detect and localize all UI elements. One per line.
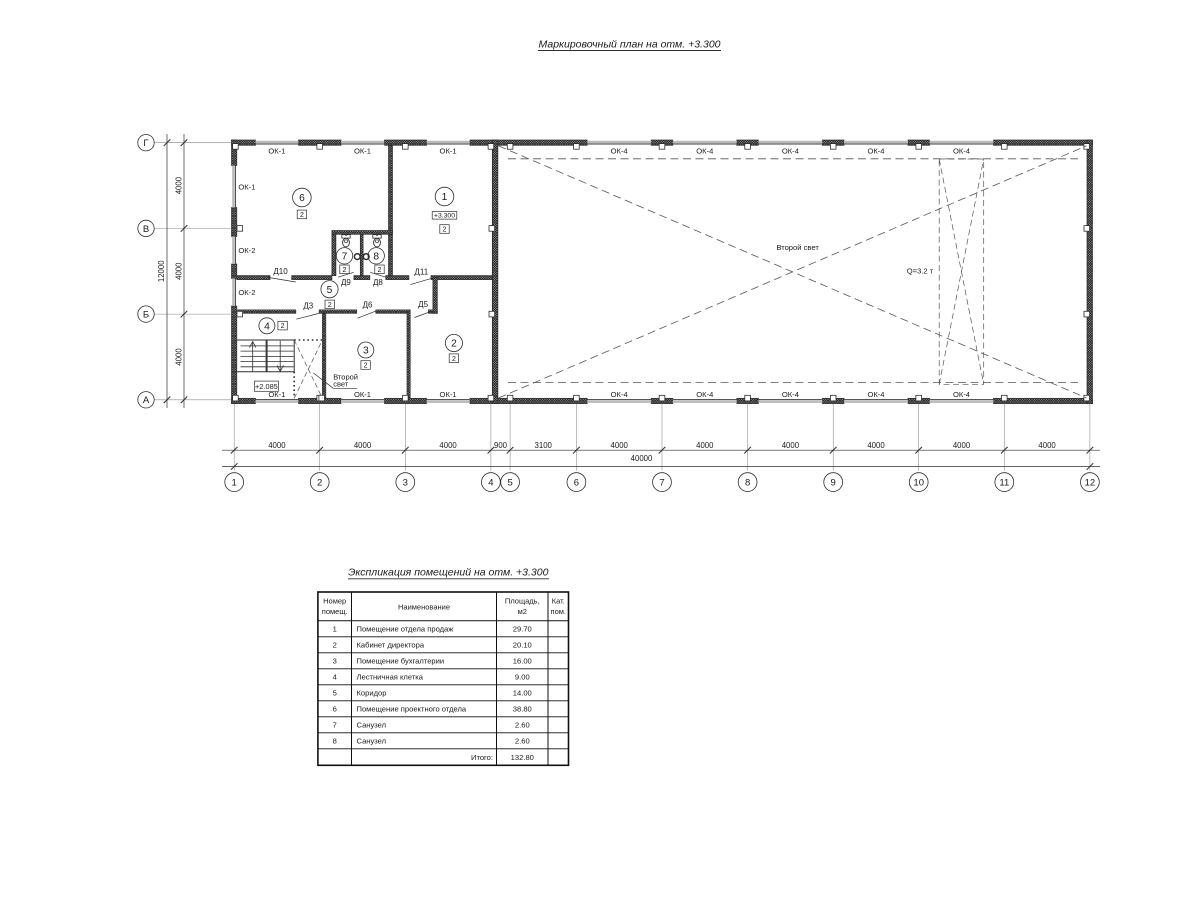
svg-text:5: 5 <box>327 285 333 296</box>
svg-text:6: 6 <box>299 193 305 204</box>
svg-text:2: 2 <box>343 267 347 274</box>
svg-text:11: 11 <box>999 478 1009 489</box>
svg-text:1: 1 <box>442 192 448 203</box>
svg-text:+3.300: +3.300 <box>434 213 455 220</box>
svg-text:Маркировочный план на отм. +3.: Маркировочный план на отм. +3.300 <box>538 39 720 51</box>
svg-text:Помещение бухгалтерии: Помещение бухгалтерии <box>357 657 445 666</box>
svg-text:4: 4 <box>488 478 493 489</box>
svg-text:ОК-2: ОК-2 <box>238 288 255 297</box>
svg-text:Q=3.2 т: Q=3.2 т <box>907 267 934 276</box>
svg-text:ОК-1: ОК-1 <box>268 147 285 156</box>
svg-text:4000: 4000 <box>439 441 457 450</box>
svg-text:ОК-4: ОК-4 <box>782 147 799 156</box>
svg-text:ОК-4: ОК-4 <box>611 390 628 399</box>
svg-text:ОК-4: ОК-4 <box>611 147 628 156</box>
svg-text:2: 2 <box>300 212 304 219</box>
svg-text:Площадь,: Площадь, <box>505 597 540 606</box>
svg-text:3: 3 <box>403 478 408 489</box>
svg-text:Итого:: Итого: <box>471 753 493 762</box>
svg-text:Номер: Номер <box>323 597 346 606</box>
svg-text:Помещение проектного отдела: Помещение проектного отдела <box>357 705 467 714</box>
svg-text:пом.: пом. <box>551 607 566 616</box>
svg-text:4000: 4000 <box>175 262 184 280</box>
svg-text:2: 2 <box>281 323 285 330</box>
svg-text:8: 8 <box>745 478 750 489</box>
svg-text:29.70: 29.70 <box>513 625 532 634</box>
svg-text:4000: 4000 <box>175 176 184 194</box>
svg-text:900: 900 <box>494 441 508 450</box>
svg-text:ОК-4: ОК-4 <box>953 390 970 399</box>
svg-text:Второй свет: Второй свет <box>776 243 819 252</box>
svg-text:4000: 4000 <box>1038 441 1056 450</box>
svg-text:Д9: Д9 <box>341 278 351 287</box>
svg-text:ОК-1: ОК-1 <box>440 147 457 156</box>
svg-text:2.60: 2.60 <box>515 721 530 730</box>
svg-text:+2.085: +2.085 <box>255 382 278 391</box>
svg-text:ОК-4: ОК-4 <box>867 147 884 156</box>
svg-text:5: 5 <box>333 689 337 698</box>
svg-text:Кат.: Кат. <box>552 597 565 606</box>
svg-text:7: 7 <box>342 251 348 262</box>
svg-text:9: 9 <box>831 478 836 489</box>
svg-text:7: 7 <box>333 721 337 730</box>
svg-text:Д8: Д8 <box>373 278 383 287</box>
svg-text:10: 10 <box>913 478 924 489</box>
svg-text:2: 2 <box>451 339 457 350</box>
svg-text:ОК-4: ОК-4 <box>867 390 884 399</box>
svg-text:Д3: Д3 <box>303 302 313 311</box>
svg-text:Санузел: Санузел <box>357 737 387 746</box>
svg-text:2: 2 <box>333 641 337 650</box>
svg-text:8: 8 <box>333 737 337 746</box>
svg-text:ОК-1: ОК-1 <box>354 147 371 156</box>
svg-text:Санузел: Санузел <box>357 721 387 730</box>
svg-text:Д10: Д10 <box>273 267 288 276</box>
svg-text:Коридор: Коридор <box>357 689 387 698</box>
svg-text:2: 2 <box>328 302 332 309</box>
svg-text:6: 6 <box>574 478 579 489</box>
svg-text:В: В <box>143 224 149 235</box>
svg-text:4000: 4000 <box>354 441 372 450</box>
svg-text:ОК-4: ОК-4 <box>696 390 713 399</box>
svg-text:5: 5 <box>507 478 512 489</box>
svg-text:2: 2 <box>378 267 382 274</box>
svg-text:Наименование: Наименование <box>398 602 450 611</box>
svg-text:ОК-1: ОК-1 <box>354 390 371 399</box>
svg-text:ОК-1: ОК-1 <box>238 182 255 191</box>
svg-text:12: 12 <box>1085 478 1096 489</box>
svg-text:Лестничная клетка: Лестничная клетка <box>357 673 424 682</box>
svg-text:4000: 4000 <box>611 441 629 450</box>
svg-text:6: 6 <box>333 705 337 714</box>
svg-text:3: 3 <box>333 657 337 666</box>
svg-text:132.80: 132.80 <box>511 753 534 762</box>
svg-text:8: 8 <box>373 251 379 262</box>
svg-text:ОК-1: ОК-1 <box>440 390 457 399</box>
svg-text:м2: м2 <box>518 607 527 616</box>
svg-text:4: 4 <box>264 321 270 332</box>
svg-text:20.10: 20.10 <box>513 641 532 650</box>
svg-text:16.00: 16.00 <box>513 657 532 666</box>
svg-text:ОК-4: ОК-4 <box>953 147 970 156</box>
svg-text:4000: 4000 <box>867 441 885 450</box>
svg-text:4000: 4000 <box>268 441 286 450</box>
svg-text:А: А <box>143 395 150 406</box>
svg-text:2: 2 <box>317 478 322 489</box>
svg-text:2: 2 <box>364 363 368 370</box>
svg-text:4000: 4000 <box>696 441 714 450</box>
svg-text:свет: свет <box>333 379 349 388</box>
svg-text:9.00: 9.00 <box>515 673 530 682</box>
svg-text:1: 1 <box>333 625 337 634</box>
svg-text:14.00: 14.00 <box>513 689 532 698</box>
svg-text:Г: Г <box>143 138 148 149</box>
svg-text:Помещение отдела продаж: Помещение отдела продаж <box>357 625 455 634</box>
svg-text:2: 2 <box>452 356 456 363</box>
svg-text:Д11: Д11 <box>414 267 428 276</box>
svg-text:ОК-4: ОК-4 <box>782 390 799 399</box>
svg-text:3100: 3100 <box>535 441 553 450</box>
svg-text:3: 3 <box>363 346 369 357</box>
svg-text:4000: 4000 <box>782 441 800 450</box>
svg-text:ОК-4: ОК-4 <box>696 147 713 156</box>
svg-text:38.80: 38.80 <box>513 705 532 714</box>
svg-text:2.60: 2.60 <box>515 737 530 746</box>
svg-text:Д5: Д5 <box>418 300 428 309</box>
svg-text:помещ.: помещ. <box>322 607 348 616</box>
svg-text:Б: Б <box>143 310 149 321</box>
svg-text:Д6: Д6 <box>363 300 373 309</box>
svg-text:ОК-2: ОК-2 <box>238 246 255 255</box>
svg-text:12000: 12000 <box>157 260 166 282</box>
svg-text:7: 7 <box>659 478 664 489</box>
svg-text:2: 2 <box>443 227 447 234</box>
svg-text:40000: 40000 <box>631 454 653 463</box>
svg-text:Кабинет директора: Кабинет директора <box>357 641 425 650</box>
svg-text:4: 4 <box>333 673 337 682</box>
svg-text:1: 1 <box>232 478 237 489</box>
svg-text:4000: 4000 <box>953 441 971 450</box>
svg-text:Экспликация помещений на отм.: Экспликация помещений на отм. +3.300 <box>348 566 548 578</box>
svg-text:4000: 4000 <box>175 348 184 366</box>
